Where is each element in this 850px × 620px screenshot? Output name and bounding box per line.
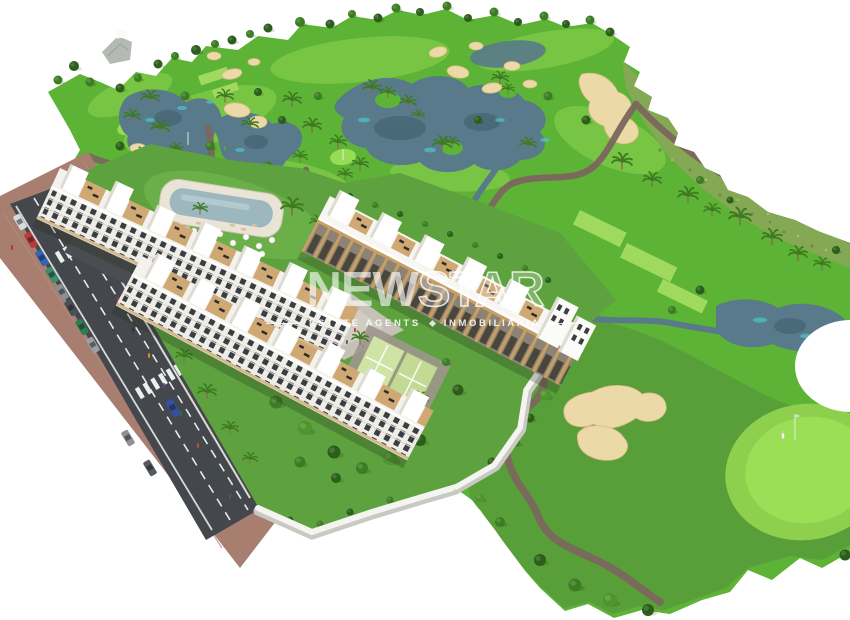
render-canvas: NEWSTAR ESTATE AGENTS INMOBILIARIA [0, 0, 850, 620]
golfer-figure [782, 431, 785, 439]
clubhouse-rocks [102, 29, 132, 64]
aerial-render [0, 0, 850, 620]
